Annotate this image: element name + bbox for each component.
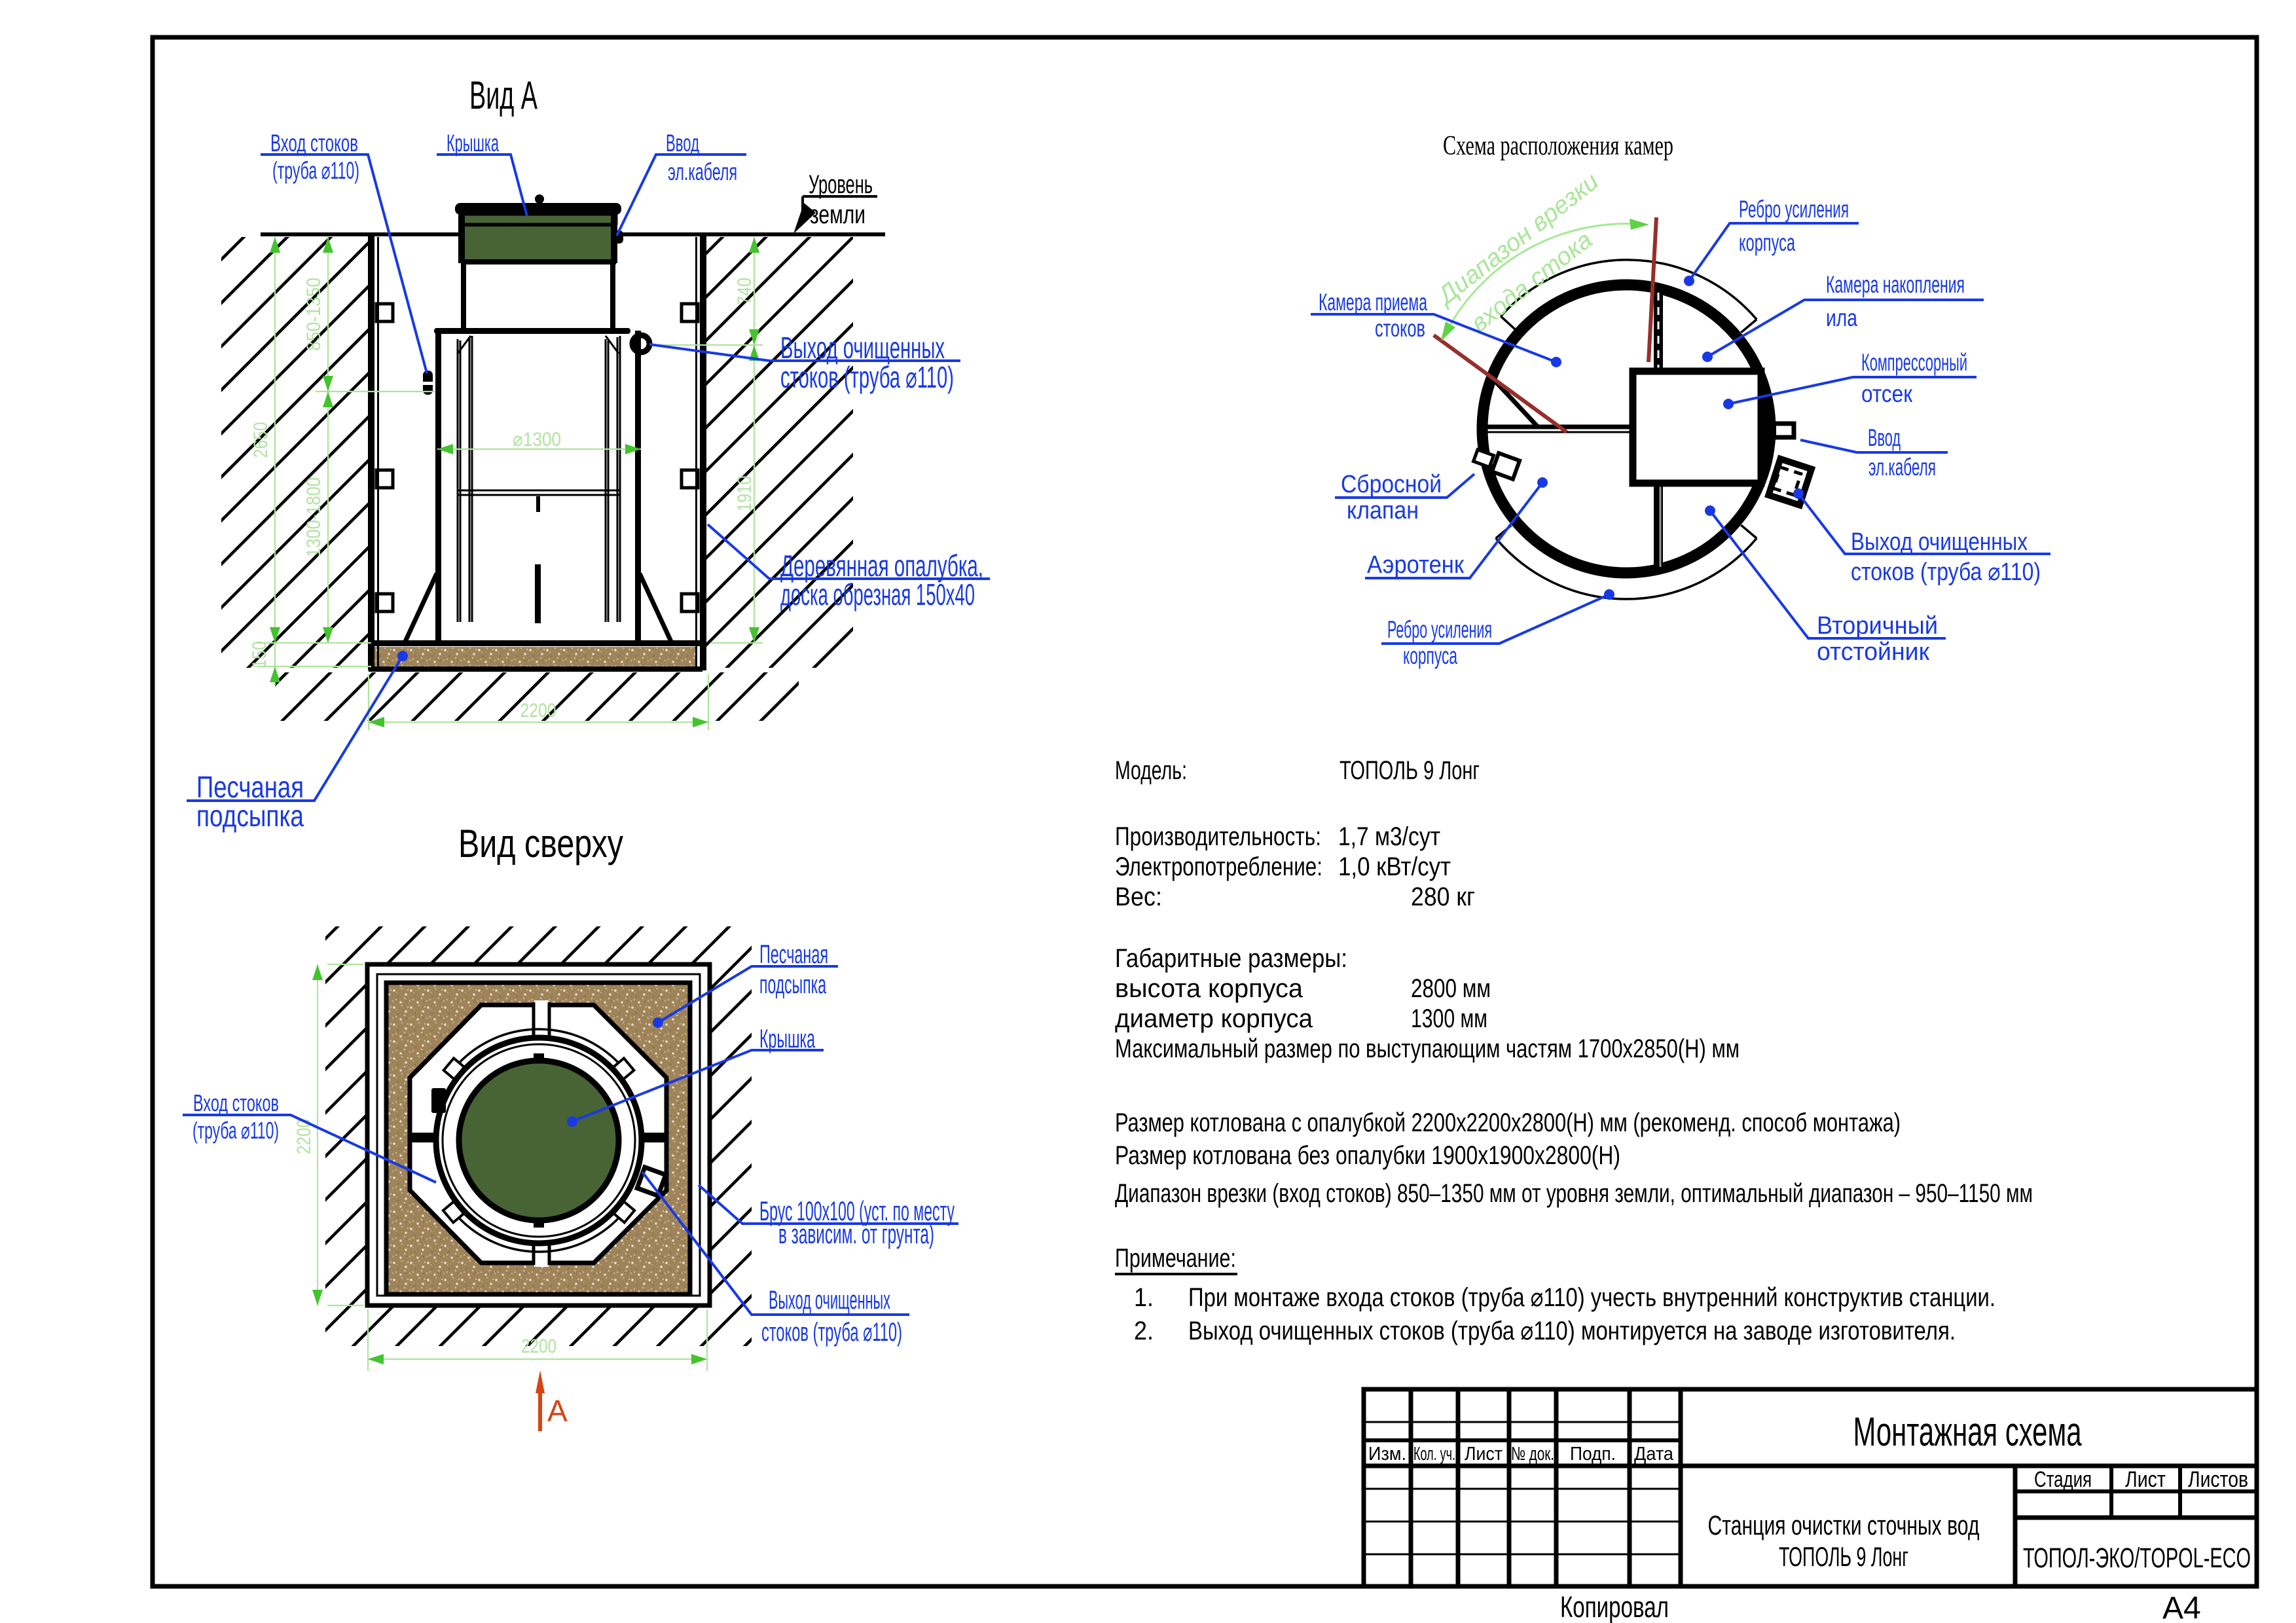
svg-text:1,7 м3/сут: 1,7 м3/сут <box>1338 822 1440 851</box>
svg-text:подсыпка: подсыпка <box>759 970 826 999</box>
svg-text:Ввод: Ввод <box>1868 424 1901 451</box>
svg-text:ТОПОЛЬ 9 Лонг: ТОПОЛЬ 9 Лонг <box>1779 1541 1908 1572</box>
svg-text:подсыпка: подсыпка <box>196 799 304 833</box>
svg-text:стоков (труба ⌀110): стоков (труба ⌀110) <box>1851 558 2041 586</box>
svg-text:Вид А: Вид А <box>469 73 538 117</box>
svg-text:Ввод: Ввод <box>666 130 699 156</box>
svg-text:Выход очищенных: Выход очищенных <box>769 1286 890 1315</box>
svg-text:(труба ⌀110): (труба ⌀110) <box>192 1117 279 1144</box>
svg-text:2650: 2650 <box>250 422 272 458</box>
svg-text:Уровень: Уровень <box>809 170 873 199</box>
svg-text:Копировал: Копировал <box>1560 1590 1669 1623</box>
svg-text:1300 мм: 1300 мм <box>1411 1004 1487 1033</box>
svg-text:отстойник: отстойник <box>1817 638 1929 666</box>
svg-text:доска обрезная 150х40: доска обрезная 150х40 <box>780 577 975 611</box>
svg-text:корпуса: корпуса <box>1403 642 1457 669</box>
svg-text:Вход стоков: Вход стоков <box>193 1089 279 1116</box>
svg-text:А: А <box>547 1394 568 1428</box>
svg-text:корпуса: корпуса <box>1739 229 1795 256</box>
svg-text:Песчаная: Песчаная <box>759 940 828 969</box>
svg-text:отсек: отсек <box>1861 380 1913 407</box>
svg-text:А4: А4 <box>2162 1591 2201 1623</box>
svg-text:Станция очистки сточных вод: Станция очистки сточных вод <box>1708 1510 1980 1541</box>
svg-text:клапан: клапан <box>1347 497 1419 524</box>
svg-text:1.: 1. <box>1134 1283 1154 1312</box>
svg-text:Сбросной: Сбросной <box>1341 471 1442 498</box>
svg-text:Вес:: Вес: <box>1115 883 1162 911</box>
svg-text:Лист: Лист <box>1465 1444 1503 1465</box>
svg-text:ила: ила <box>1826 304 1857 331</box>
svg-text:Лист: Лист <box>2125 1467 2166 1492</box>
svg-text:ТОПОЛЬ 9 Лонг: ТОПОЛЬ 9 Лонг <box>1339 756 1480 785</box>
svg-text:150: 150 <box>249 641 270 668</box>
svg-text:При монтаже входа стоков (тру: При монтаже входа стоков (труба ⌀110) уч… <box>1188 1283 1995 1312</box>
svg-text:2200: 2200 <box>520 700 556 721</box>
svg-text:диаметр корпуса: диаметр корпуса <box>1115 1004 1313 1033</box>
svg-text:Листов: Листов <box>2188 1467 2248 1492</box>
svg-text:Вход стоков: Вход стоков <box>270 130 358 156</box>
svg-text:Аэротенк: Аэротенк <box>1367 551 1464 579</box>
svg-text:ТОПОЛ-ЭКО/TOPOL-ECO: ТОПОЛ-ЭКО/TOPOL-ECO <box>2023 1542 2251 1574</box>
svg-text:2800 мм: 2800 мм <box>1411 974 1491 1003</box>
svg-text:эл.кабеля: эл.кабеля <box>1868 454 1936 481</box>
svg-text:Вид сверху: Вид сверху <box>458 822 623 866</box>
svg-text:Выход очищенных стоков (труба: Выход очищенных стоков (труба ⌀110) монт… <box>1188 1317 1956 1345</box>
svg-text:Дата: Дата <box>1634 1444 1674 1465</box>
svg-text:Электропотребление:: Электропотребление: <box>1115 852 1322 881</box>
svg-text:740: 740 <box>734 278 756 305</box>
svg-text:⌀1300: ⌀1300 <box>513 429 561 450</box>
svg-text:высота корпуса: высота корпуса <box>1115 974 1303 1003</box>
svg-text:стоков (труба ⌀110): стоков (труба ⌀110) <box>761 1318 902 1347</box>
svg-text:(труба ⌀110): (труба ⌀110) <box>272 157 359 184</box>
svg-text:Выход очищенных: Выход очищенных <box>1851 528 2028 556</box>
svg-text:Диапазон врезки (вход стоков): Диапазон врезки (вход стоков) 850–1350 м… <box>1115 1179 2033 1208</box>
svg-text:Изм.: Изм. <box>1368 1444 1406 1465</box>
svg-text:стоков (труба ⌀110): стоков (труба ⌀110) <box>780 360 954 394</box>
svg-text:1,0 кВт/сут: 1,0 кВт/сут <box>1338 852 1451 881</box>
svg-text:Габаритные размеры:: Габаритные размеры: <box>1115 944 1347 973</box>
svg-text:Размер котлована с опалубкой 2: Размер котлована с опалубкой 2200х2200х2… <box>1115 1108 1901 1137</box>
svg-text:Примечание:: Примечание: <box>1115 1244 1236 1273</box>
svg-text:Размер котлована без опалубки: Размер котлована без опалубки 1900х1900х… <box>1115 1141 1620 1170</box>
svg-text:Ребро усиления: Ребро усиления <box>1387 616 1492 643</box>
svg-text:Кол. уч.: Кол. уч. <box>1413 1444 1455 1465</box>
svg-text:1300-1800: 1300-1800 <box>303 477 325 557</box>
svg-text:эл.кабеля: эл.кабеля <box>668 158 737 185</box>
svg-text:Схема расположения камер: Схема расположения камер <box>1443 131 1673 161</box>
svg-text:Крышка: Крышка <box>446 130 499 156</box>
svg-text:2.: 2. <box>1134 1317 1154 1345</box>
svg-text:Компрессорный: Компрессорный <box>1861 349 1967 376</box>
svg-text:стоков: стоков <box>1375 315 1425 342</box>
svg-text:Вторичный: Вторичный <box>1817 612 1938 640</box>
svg-text:280 кг: 280 кг <box>1411 883 1475 911</box>
svg-text:земли: земли <box>810 200 866 229</box>
svg-text:1910: 1910 <box>734 476 756 512</box>
svg-text:Камера накопления: Камера накопления <box>1826 271 1965 298</box>
svg-text:Камера приема: Камера приема <box>1319 289 1427 316</box>
svg-text:2200: 2200 <box>521 1336 556 1357</box>
svg-text:Максимальный размер по выступа: Максимальный размер по выступающим частя… <box>1115 1034 1740 1063</box>
svg-text:Стадия: Стадия <box>2034 1467 2092 1492</box>
svg-text:Монтажная схема: Монтажная схема <box>1853 1410 2082 1455</box>
svg-text:Производительность:: Производительность: <box>1115 822 1321 851</box>
svg-text:Модель:: Модель: <box>1115 756 1187 785</box>
svg-text:850-1350: 850-1350 <box>303 278 325 351</box>
svg-text:Подп.: Подп. <box>1570 1444 1616 1465</box>
svg-text:Ребро усиления: Ребро усиления <box>1739 196 1849 223</box>
svg-text:№ док.: № док. <box>1511 1444 1554 1465</box>
